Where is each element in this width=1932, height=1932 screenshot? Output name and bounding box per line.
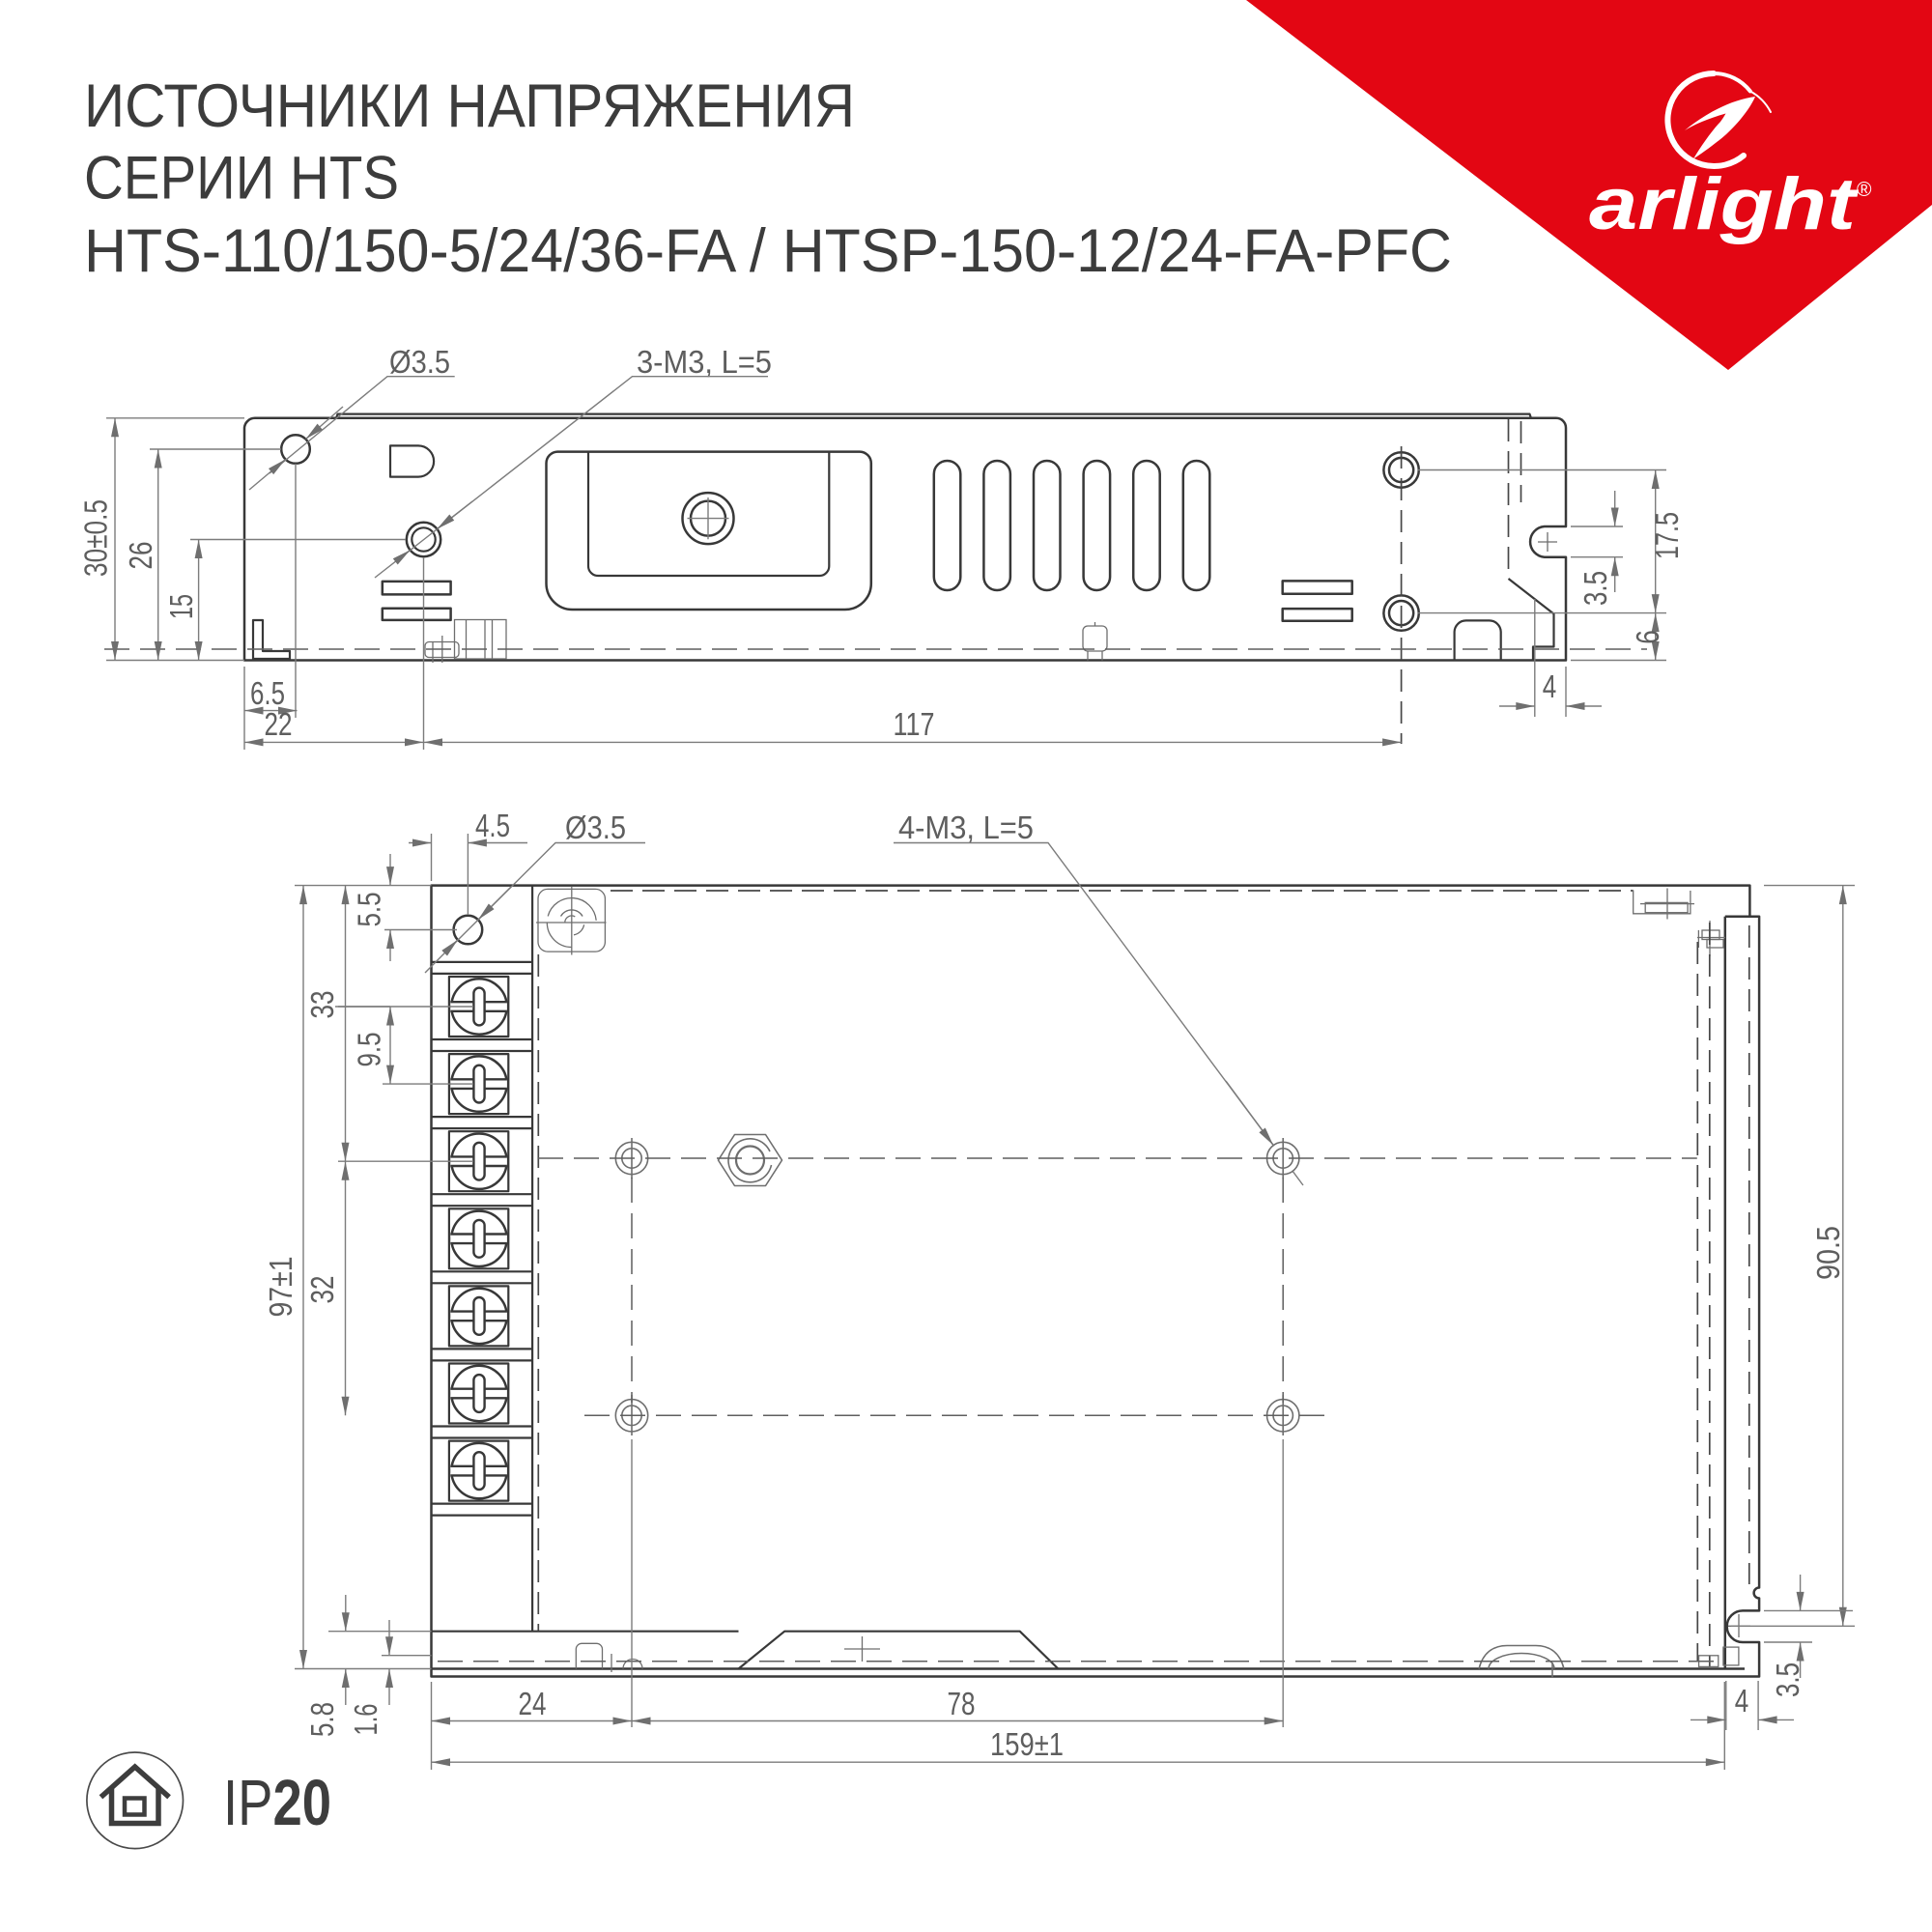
svg-text:IP20: IP20 [223, 1767, 331, 1839]
svg-text:90.5: 90.5 [1810, 1226, 1846, 1280]
svg-text:arlight: arlight [1589, 163, 1859, 245]
svg-text:4: 4 [1543, 668, 1557, 704]
svg-text:17.5: 17.5 [1649, 512, 1685, 559]
svg-text:4: 4 [1735, 1683, 1749, 1719]
svg-text:СЕРИИ HTS: СЕРИИ HTS [84, 145, 399, 213]
svg-text:15: 15 [163, 594, 199, 619]
svg-text:HTS-110/150-5/24/36-FA / HTSP-: HTS-110/150-5/24/36-FA / HTSP-150-12/24-… [84, 217, 1452, 285]
svg-text:30±0.5: 30±0.5 [78, 499, 114, 577]
svg-text:3.5: 3.5 [1577, 571, 1613, 606]
svg-text:1.6: 1.6 [348, 1704, 384, 1736]
svg-text:3-M3, L=5: 3-M3, L=5 [637, 344, 772, 380]
svg-text:4-M3, L=5: 4-M3, L=5 [898, 810, 1034, 845]
svg-text:5.5: 5.5 [352, 893, 387, 927]
svg-text:22: 22 [265, 706, 293, 742]
svg-text:5.8: 5.8 [304, 1702, 340, 1737]
svg-text:ИСТОЧНИКИ НАПРЯЖЕНИЯ: ИСТОЧНИКИ НАПРЯЖЕНИЯ [84, 72, 855, 140]
svg-text:159±1: 159±1 [990, 1726, 1064, 1762]
svg-text:33: 33 [304, 991, 340, 1019]
svg-text:Ø3.5: Ø3.5 [565, 810, 626, 845]
svg-text:26: 26 [123, 542, 158, 570]
svg-text:78: 78 [948, 1686, 976, 1721]
svg-text:6: 6 [1630, 630, 1665, 644]
svg-text:24: 24 [519, 1686, 547, 1721]
svg-text:4.5: 4.5 [475, 808, 510, 843]
svg-text:32: 32 [304, 1276, 340, 1304]
svg-text:3.5: 3.5 [1770, 1662, 1805, 1697]
svg-text:9.5: 9.5 [352, 1033, 387, 1067]
svg-text:®: ® [1857, 179, 1872, 201]
svg-text:Ø3.5: Ø3.5 [389, 344, 450, 380]
svg-text:97±1: 97±1 [263, 1257, 298, 1318]
svg-text:117: 117 [894, 706, 935, 742]
